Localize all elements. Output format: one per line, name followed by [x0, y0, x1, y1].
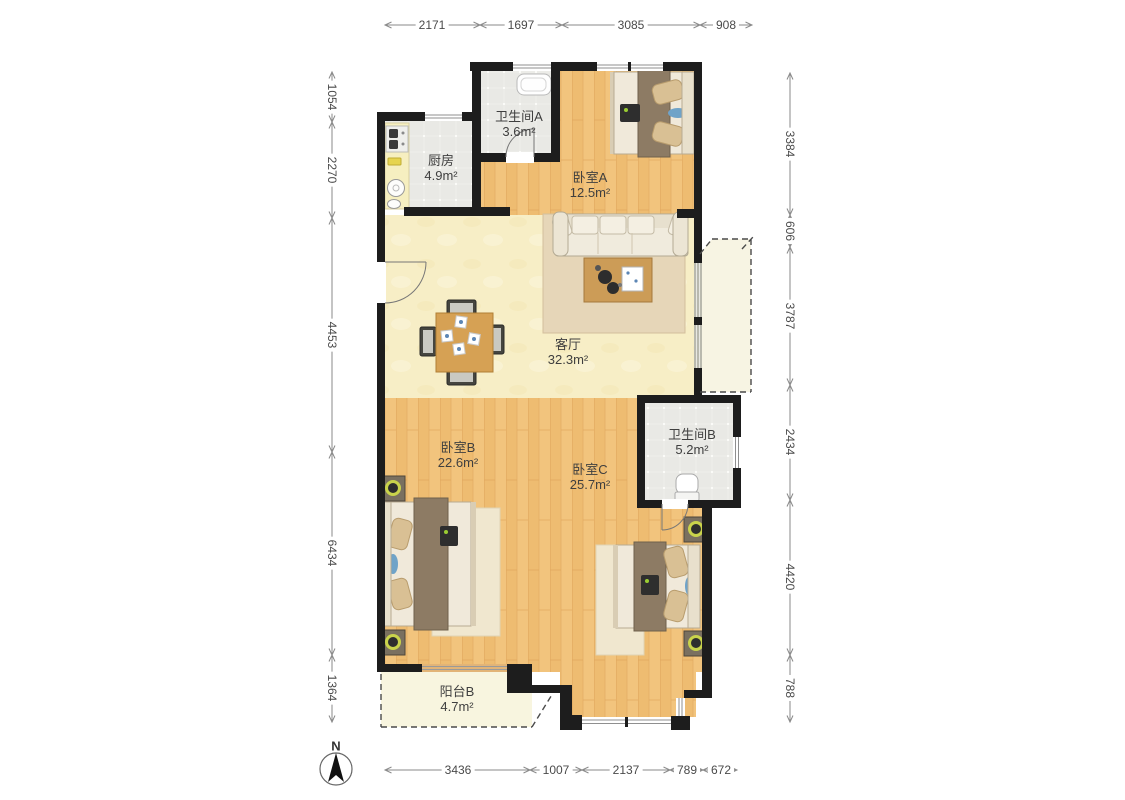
dim-left-5: 1364 — [325, 672, 339, 705]
balcony-window-icon — [694, 263, 702, 368]
dim-bottom-5: 672 — [708, 763, 734, 777]
room-name: 卫生间A — [495, 109, 543, 124]
coffee-table-icon — [584, 258, 652, 302]
room-area: 32.3m² — [548, 352, 588, 367]
toilet-icon — [675, 474, 699, 501]
dim-right-2: 606 — [783, 218, 797, 244]
dim-top-2: 1697 — [505, 18, 538, 32]
dim-left-2: 2270 — [325, 154, 339, 187]
dim-top-1: 2171 — [416, 18, 449, 32]
lamp-icon — [387, 482, 400, 495]
entry-door-opening — [376, 262, 386, 303]
dim-right-1: 3384 — [783, 128, 797, 161]
compass-north-label: N — [331, 739, 340, 754]
bathroom-b-door-opening — [662, 499, 688, 509]
dim-bottom-1: 3436 — [442, 763, 475, 777]
dim-left-1: 1054 — [325, 81, 339, 114]
room-name: 卧室B — [438, 440, 478, 455]
room-area: 25.7m² — [570, 477, 610, 492]
dim-right-5: 4420 — [783, 561, 797, 594]
room-area: 12.5m² — [570, 185, 610, 200]
room-label-balcony-b: 阳台B 4.7m² — [440, 684, 475, 714]
compass-icon — [320, 753, 352, 785]
bathroom-a-door-opening — [506, 152, 534, 163]
bathtub-icon — [517, 74, 551, 95]
room-name: 卧室A — [570, 170, 610, 185]
dim-top-3: 3085 — [615, 18, 648, 32]
bed-a-icon — [610, 69, 694, 157]
room-label-kitchen: 厨房 4.9m² — [424, 153, 457, 183]
room-label-bedroom-a: 卧室A 12.5m² — [570, 170, 610, 200]
room-label-bedroom-c: 卧室C 25.7m² — [570, 462, 610, 492]
dim-right-3: 3787 — [783, 300, 797, 333]
sink-icon — [388, 180, 405, 197]
floor-plan-page: 厨房 4.9m² 卫生间A 3.6m² 卧室A 12.5m² 客厅 32.3m²… — [0, 0, 1125, 800]
floor-plan-drawing — [0, 0, 1125, 800]
lamp-icon — [690, 523, 703, 536]
room-area: 5.2m² — [668, 442, 716, 457]
bathroom-b-window-icon — [733, 437, 741, 468]
dim-left-4: 6434 — [325, 537, 339, 570]
dim-left-3: 4453 — [325, 319, 339, 352]
room-area: 4.9m² — [424, 168, 457, 183]
room-name: 厨房 — [424, 153, 457, 168]
lamp-icon — [690, 637, 703, 650]
room-name: 卧室C — [570, 462, 610, 477]
bedroom-c-bay-floor — [560, 672, 696, 717]
room-name: 卫生间B — [668, 427, 716, 442]
dim-bottom-3: 2137 — [610, 763, 643, 777]
balcony-right-floor — [700, 239, 751, 392]
balcony-b-sliding-door — [422, 664, 507, 672]
dim-top-4: 908 — [713, 18, 739, 32]
room-label-bathroom-b: 卫生间B 5.2m² — [668, 427, 716, 457]
kitchen-counter-icon — [385, 123, 409, 209]
room-area: 22.6m² — [438, 455, 478, 470]
dim-bottom-2: 1007 — [540, 763, 573, 777]
dim-right-4: 2434 — [783, 426, 797, 459]
room-label-bathroom-a: 卫生间A 3.6m² — [495, 109, 543, 139]
room-name: 客厅 — [548, 337, 588, 352]
room-label-bedroom-b: 卧室B 22.6m² — [438, 440, 478, 470]
sofa-icon — [551, 212, 688, 256]
room-label-living-room: 客厅 32.3m² — [548, 337, 588, 367]
room-area: 3.6m² — [495, 124, 543, 139]
dim-right-6: 788 — [783, 675, 797, 701]
room-name: 阳台B — [440, 684, 475, 699]
lamp-icon — [387, 636, 400, 649]
room-area: 4.7m² — [440, 699, 475, 714]
dim-bottom-4: 789 — [674, 763, 700, 777]
